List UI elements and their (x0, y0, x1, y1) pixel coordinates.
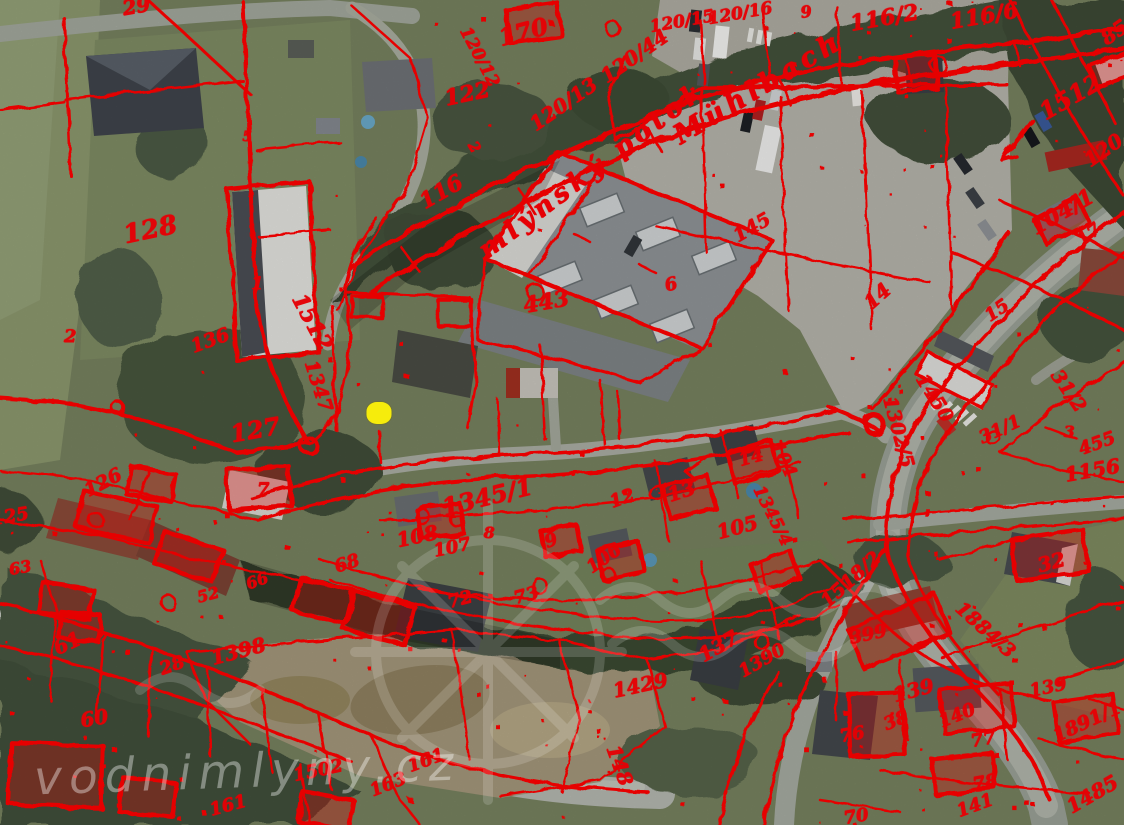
selected-point-marker[interactable] (367, 402, 392, 424)
watermark-mill-logo (0, 0, 1124, 825)
map-viewport[interactable]: 29170120/12122120/13120/44120/15120/1691… (0, 0, 1124, 825)
